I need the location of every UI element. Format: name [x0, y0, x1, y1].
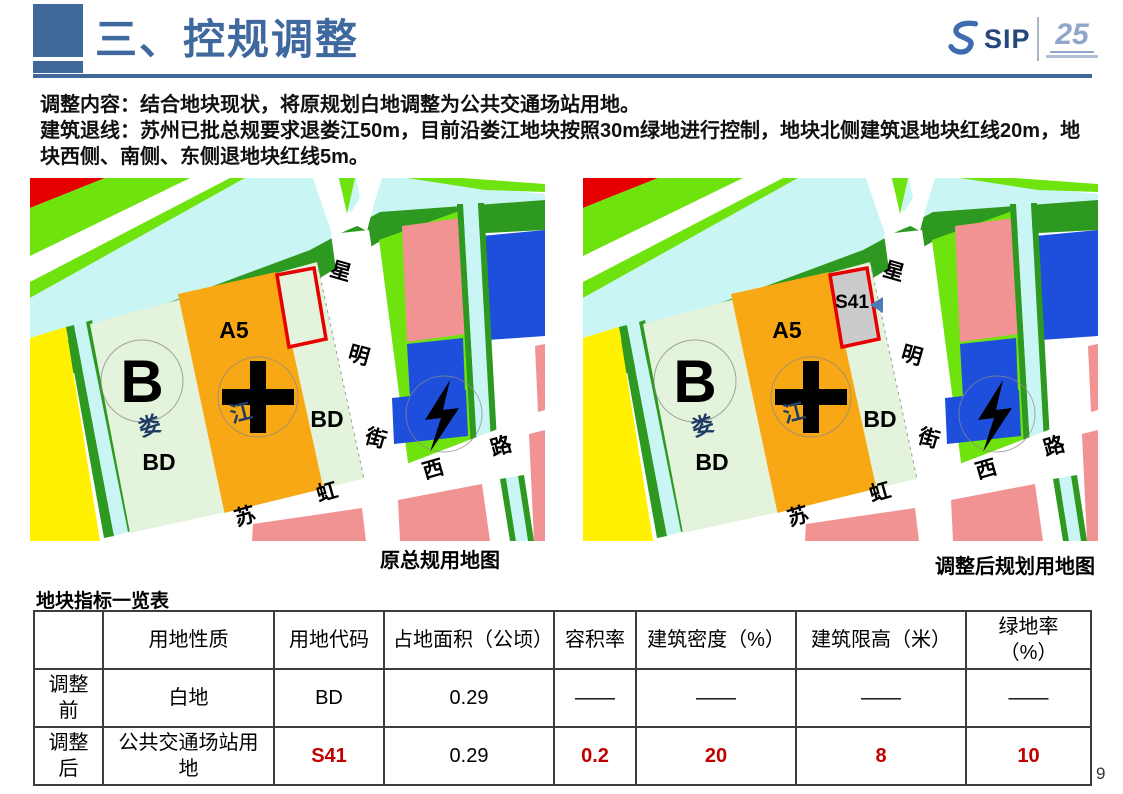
table-row: 调整后公共交通场站用地S410.290.220810: [34, 727, 1091, 785]
page-title: 三、控规调整: [95, 6, 359, 67]
label-parcel-a5: A5: [219, 317, 249, 343]
title-rule: [33, 74, 1092, 78]
table-cell: ——: [966, 669, 1091, 727]
table-header-row: 用地性质用地代码占地面积（公顷）容积率建筑密度（%）建筑限高（米）绿地率（%）: [34, 611, 1091, 669]
sip-s-swoosh-icon: [948, 13, 980, 65]
anniversary-number: 25: [1055, 21, 1088, 49]
map-adjusted-canvas: S41娄江星明街苏虹西路BA5BDBD: [583, 178, 1098, 541]
title-deco-square: [33, 4, 83, 57]
label-parcel-bd-left: BD: [695, 449, 728, 475]
table-cell: 白地: [103, 669, 274, 727]
table-header-cell: 用地性质: [103, 611, 274, 669]
table-cell: 0.29: [384, 727, 554, 785]
table-cell: ——: [554, 669, 636, 727]
parcel-pink-east: [402, 218, 465, 342]
label-parcel-bd-right: BD: [310, 406, 343, 432]
parcel-blue-ne: [1035, 230, 1098, 340]
label-parcel-b: B: [673, 348, 716, 415]
title-deco-bar: [33, 61, 83, 73]
caption-original-map: 原总规用地图: [30, 544, 500, 573]
table-cell: 公共交通场站用地: [103, 727, 274, 785]
table-cell: 10: [966, 727, 1091, 785]
table-cell: 8: [796, 727, 966, 785]
table-row: 调整前白地BD0.29————————: [34, 669, 1091, 727]
table-header-cell: [34, 611, 103, 669]
table-cell: ——: [796, 669, 966, 727]
sip-logo-text: SIP: [984, 24, 1031, 55]
label-parcel-bd-right: BD: [863, 406, 896, 432]
body-paragraph-2: 建筑退线：苏州已批总规要求退娄江50m，目前沿娄江地块按照30m绿地进行控制，地…: [40, 118, 1092, 170]
parcel-blue-ne: [482, 230, 545, 340]
logo-fine-print-bar: [1050, 51, 1094, 53]
table-cell: 0.2: [554, 727, 636, 785]
table-cell: 20: [636, 727, 796, 785]
anniversary-mark: 25: [1046, 21, 1098, 58]
table-cell: S41: [274, 727, 384, 785]
table-cell: 0.29: [384, 669, 554, 727]
label-parcel-b: B: [120, 348, 163, 415]
label-parcel-bd-left: BD: [142, 449, 175, 475]
table-title: 地块指标一览表: [36, 586, 169, 613]
table-row-label: 调整后: [34, 727, 103, 785]
caption-adjusted-map: 调整后规划用地图: [583, 550, 1095, 579]
logo-divider: [1037, 17, 1039, 61]
table-row-label: 调整前: [34, 669, 103, 727]
table-header-cell: 建筑限高（米）: [796, 611, 966, 669]
table-cell: BD: [274, 669, 384, 727]
table-header-cell: 容积率: [554, 611, 636, 669]
table-header-cell: 绿地率（%）: [966, 611, 1091, 669]
table-header-cell: 用地代码: [274, 611, 384, 669]
slide: 三、控规调整 SIP 25 调整内容：结合地块现状，将原规划白地调整为公共交通场…: [0, 0, 1123, 794]
label-parcel-a5: A5: [772, 317, 802, 343]
indicator-table: 用地性质用地代码占地面积（公顷）容积率建筑密度（%）建筑限高（米）绿地率（%）调…: [33, 610, 1092, 786]
body-text: 调整内容：结合地块现状，将原规划白地调整为公共交通场站用地。 建筑退线：苏州已批…: [40, 92, 1092, 170]
page-number: 9: [1096, 764, 1105, 784]
label-s41: S41: [835, 292, 869, 313]
sip-logo: SIP 25: [948, 10, 1098, 68]
land-use-map-adjusted: S41娄江星明街苏虹西路BA5BDBD: [583, 178, 1098, 541]
table-header-cell: 占地面积（公顷）: [384, 611, 554, 669]
map-original-canvas: 娄江星明街苏虹西路BA5BDBD: [30, 178, 545, 541]
body-paragraph-1: 调整内容：结合地块现状，将原规划白地调整为公共交通场站用地。: [40, 92, 1092, 118]
table-header-cell: 建筑密度（%）: [636, 611, 796, 669]
parcel-pink-east: [955, 218, 1018, 342]
logo-fine-print-bar: [1046, 55, 1098, 58]
land-use-map-original: 娄江星明街苏虹西路BA5BDBD: [30, 178, 545, 541]
table-cell: ——: [636, 669, 796, 727]
